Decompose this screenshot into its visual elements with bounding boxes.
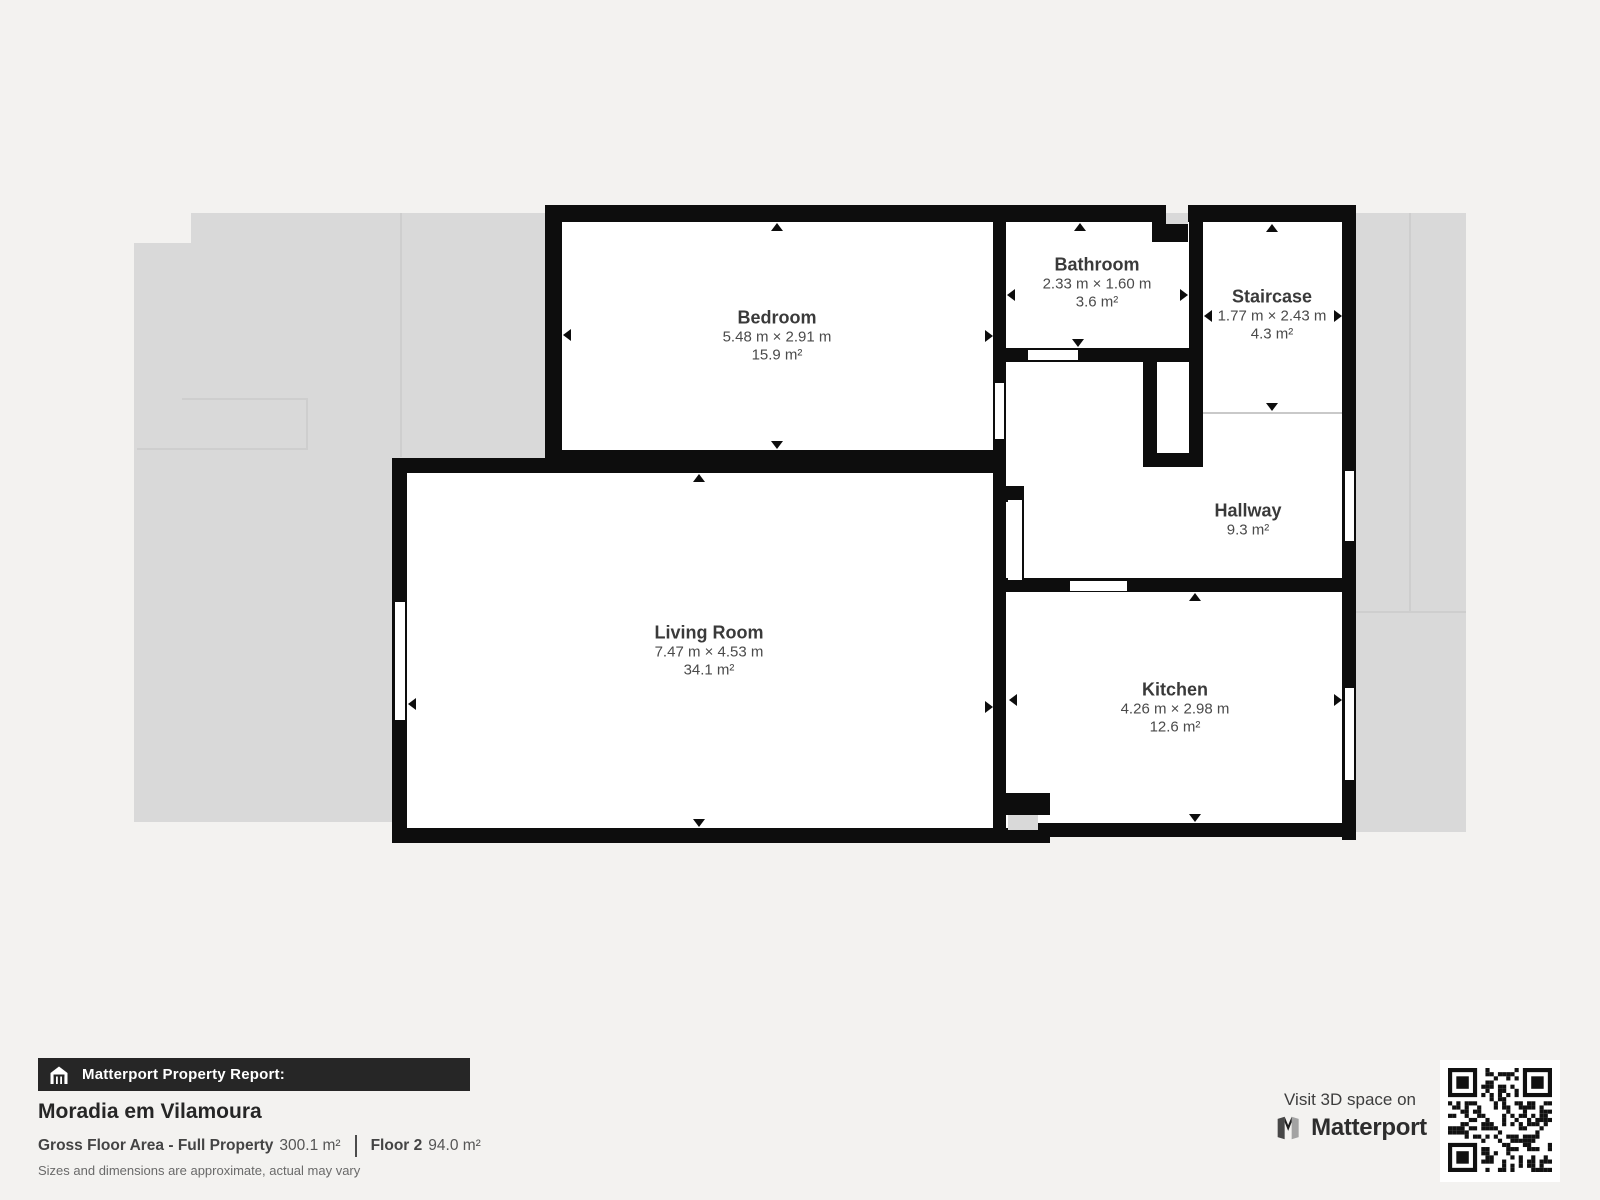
area-info-line: Gross Floor Area - Full Property 300.1 m… — [38, 1135, 481, 1157]
open-boundary-staircase — [1203, 412, 1342, 414]
door-leaf-living-room — [1008, 500, 1022, 580]
wall — [1143, 362, 1157, 467]
report-label: Matterport Property Report: — [82, 1066, 285, 1083]
gross-floor-area-value: 300.1 m² — [279, 1137, 340, 1155]
room-dims: 7.47 m × 4.53 m — [655, 644, 764, 662]
room-dims: 5.48 m × 2.91 m — [723, 329, 832, 347]
dimension-arrow-right — [985, 330, 993, 342]
room-label-hallway: Hallway 9.3 m² — [1214, 501, 1281, 540]
wall — [545, 205, 1166, 222]
floor-value: 94.0 m² — [428, 1137, 481, 1155]
window-opening-hallway — [995, 383, 1004, 439]
underlay-line — [182, 398, 306, 400]
underlay-left-block — [191, 213, 392, 822]
visit-3d-text: Visit 3D space on — [1284, 1090, 1416, 1110]
underlay-notch-bottom — [1008, 815, 1038, 830]
room-dims: 2.33 m × 1.60 m — [1043, 276, 1152, 294]
wall — [545, 450, 1006, 473]
dimension-arrow-down — [771, 441, 783, 449]
underlay-line — [1356, 611, 1466, 613]
room-area: 9.3 m² — [1214, 522, 1281, 540]
dimension-arrow-up — [1074, 223, 1086, 231]
wall — [1152, 222, 1188, 242]
floor-label: Floor 2 — [371, 1137, 423, 1155]
room-dims: 4.26 m × 2.98 m — [1121, 701, 1230, 719]
window-kitchen — [1345, 688, 1354, 780]
property-report-page: Bedroom 5.48 m × 2.91 m 15.9 m² Bathroom… — [0, 0, 1600, 1200]
disclaimer-text: Sizes and dimensions are approximate, ac… — [38, 1163, 360, 1178]
room-area: 34.1 m² — [655, 662, 764, 680]
room-label-bedroom: Bedroom 5.48 m × 2.91 m 15.9 m² — [723, 308, 832, 365]
underlay-line — [400, 213, 402, 457]
room-area: 12.6 m² — [1121, 719, 1230, 737]
underlay-notch-top — [1166, 213, 1188, 224]
matterport-wordmark: Matterport — [1311, 1114, 1427, 1142]
dimension-arrow-down — [693, 819, 705, 827]
dimension-arrow-up — [1266, 224, 1278, 232]
report-header-bar: Matterport Property Report: — [38, 1058, 470, 1091]
underlay-line — [1409, 213, 1411, 613]
dimension-arrow-up — [1189, 593, 1201, 601]
room-dims: 1.77 m × 2.43 m — [1218, 308, 1327, 326]
matterport-m-icon — [1273, 1114, 1303, 1142]
wall — [1189, 205, 1203, 467]
room-name: Hallway — [1214, 501, 1281, 522]
room-name: Kitchen — [1121, 680, 1230, 701]
dimension-arrow-right — [1334, 310, 1342, 322]
room-label-kitchen: Kitchen 4.26 m × 2.98 m 12.6 m² — [1121, 680, 1230, 737]
room-label-staircase: Staircase 1.77 m × 2.43 m 4.3 m² — [1218, 287, 1327, 344]
wall — [1143, 453, 1203, 467]
wall — [392, 828, 1050, 843]
dimension-arrow-left — [1204, 310, 1212, 322]
room-name: Living Room — [655, 623, 764, 644]
dimension-arrow-down — [1072, 339, 1084, 347]
dimension-arrow-right — [985, 701, 993, 713]
dimension-arrow-left — [1007, 289, 1015, 301]
matterport-logo[interactable]: Matterport — [1273, 1114, 1427, 1142]
underlay-line — [137, 448, 307, 450]
door-opening-bathroom — [1028, 350, 1078, 360]
house-report-icon — [49, 1065, 69, 1085]
wall — [545, 205, 562, 473]
window-hallway — [1345, 471, 1354, 541]
wall — [993, 205, 1006, 843]
room-name: Bathroom — [1043, 255, 1152, 276]
wall-door-edge — [1022, 500, 1024, 580]
divider — [355, 1135, 357, 1157]
wall — [993, 793, 1050, 815]
underlay-above-living — [392, 213, 545, 458]
room-label-bathroom: Bathroom 2.33 m × 1.60 m 3.6 m² — [1043, 255, 1152, 312]
underlay-right-column — [1356, 213, 1466, 832]
dimension-arrow-right — [1334, 694, 1342, 706]
room-area: 15.9 m² — [723, 347, 832, 365]
wall — [993, 348, 1203, 362]
dimension-arrow-left — [563, 329, 571, 341]
room-area: 4.3 m² — [1218, 326, 1327, 344]
dimension-arrow-up — [693, 474, 705, 482]
dimension-arrow-up — [771, 223, 783, 231]
window-living-room — [395, 602, 405, 720]
wall — [1188, 205, 1356, 222]
room-label-living-room: Living Room 7.47 m × 4.53 m 34.1 m² — [655, 623, 764, 680]
door-opening-kitchen — [1070, 581, 1127, 591]
wall — [392, 458, 545, 473]
room-area: 3.6 m² — [1043, 294, 1152, 312]
underlay-line — [306, 398, 308, 450]
property-name: Moradia em Vilamoura — [38, 1100, 262, 1124]
dimension-arrow-down — [1189, 814, 1201, 822]
dimension-arrow-down — [1266, 403, 1278, 411]
wall — [993, 578, 1356, 592]
gross-floor-area-label: Gross Floor Area - Full Property — [38, 1137, 273, 1155]
wall — [1038, 823, 1356, 837]
room-name: Staircase — [1218, 287, 1327, 308]
room-name: Bedroom — [723, 308, 832, 329]
underlay-left-step — [134, 243, 191, 822]
dimension-arrow-right — [1180, 289, 1188, 301]
qr-code[interactable] — [1440, 1060, 1560, 1182]
dimension-arrow-left — [1009, 694, 1017, 706]
dimension-arrow-left — [408, 698, 416, 710]
